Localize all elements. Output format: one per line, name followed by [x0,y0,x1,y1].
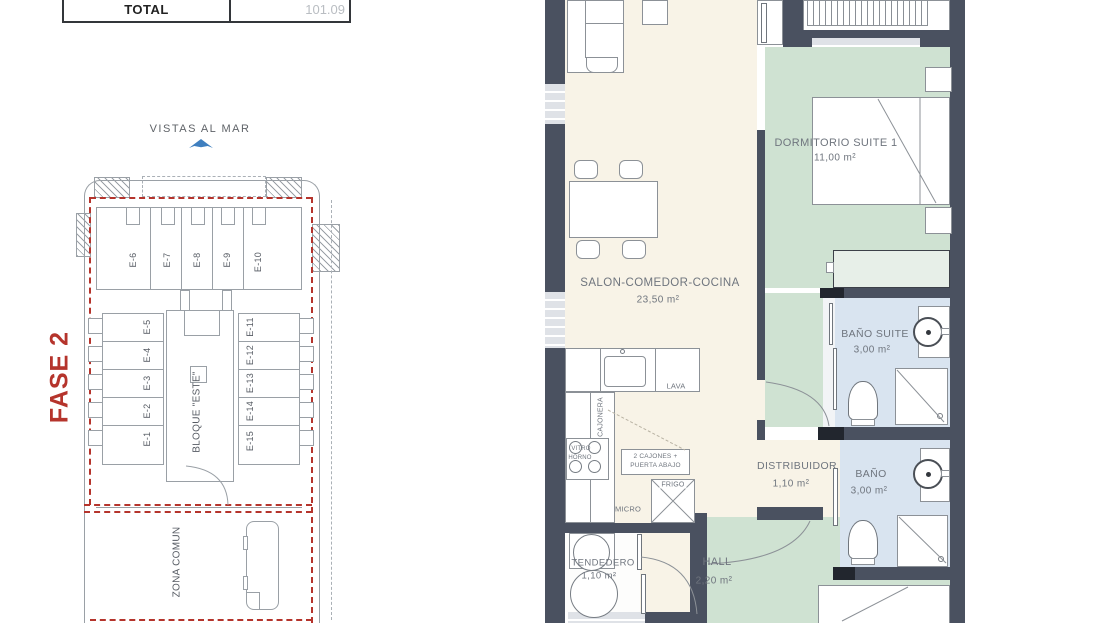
room-area-distribuidor: 1,10 m² [773,479,810,490]
label-frigo: FRIGO [659,482,686,489]
room-label-bano: BAÑO [855,468,886,480]
room-label-tendedero: TENDEDERO [571,558,634,569]
label-lava: LAVA [667,382,686,391]
shower-diagonal [899,517,946,563]
room-area-bano: 3,00 m² [851,486,888,497]
site-door-arc [186,466,228,505]
room-label-hall: HALL [702,556,731,568]
room-area-tendedero: 1,10 m² [581,571,616,582]
room-label-bano-suite: BAÑO SUITE [841,328,909,340]
room-area-hall: 2,20 m² [696,576,733,587]
room-label-salon: SALON-COMEDOR-COCINA [580,277,739,289]
cabinet-dash-line [608,410,685,450]
linework-overlay [0,0,1110,623]
bed2-diagonal [842,587,908,621]
label-horno: HORNO [568,455,591,461]
room-area-dormitorio-suite: 11,00 m² [814,153,856,164]
door-arc-entrance [641,557,697,614]
room-label-distribuidor: DISTRIBUIDOR [757,460,837,472]
label-cajonera: CAJONERA [598,397,605,437]
label-vitro: VITRO [571,446,590,452]
floorplan-sheet: TOTAL 101.09 VISTAS AL MAR FASE 2 E-6 E-… [0,0,1110,623]
door-arc-suite [766,382,829,426]
label-micro: MICRO [615,505,641,514]
bed-diagonal [878,99,936,203]
shower-diagonal [897,370,944,422]
room-area-salon: 23,50 m² [637,295,680,306]
room-label-dormitorio-suite: DORMITORIO SUITE 1 [774,137,897,149]
room-area-bano-suite: 3,00 m² [854,345,891,356]
